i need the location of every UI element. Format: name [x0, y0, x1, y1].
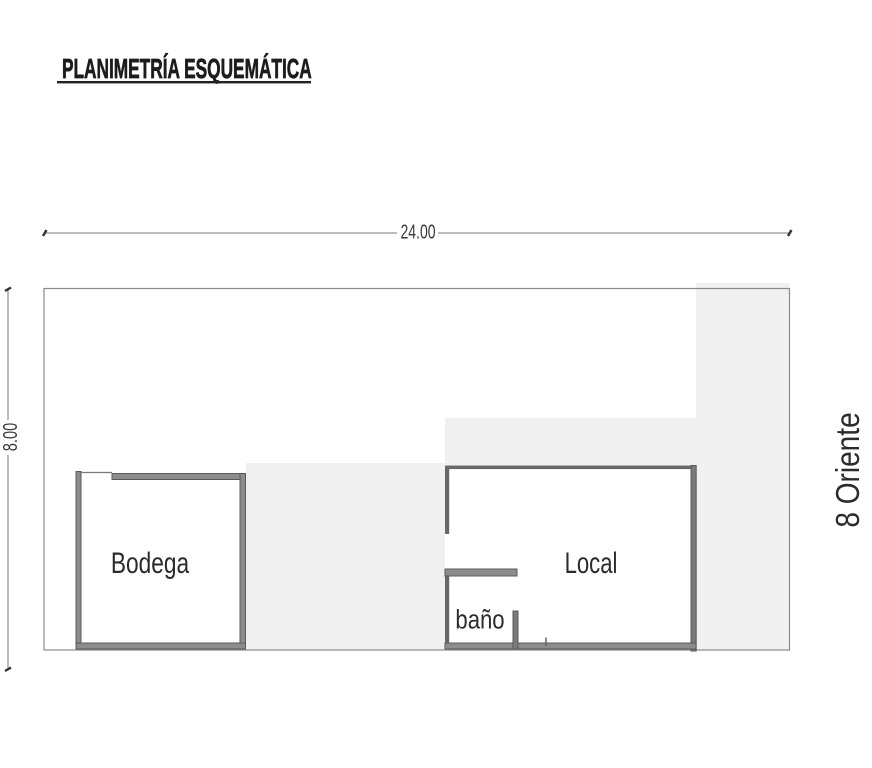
svg-text:Bodega: Bodega — [111, 546, 190, 580]
svg-text:baño: baño — [455, 606, 504, 636]
svg-text:8.00: 8.00 — [0, 423, 22, 452]
svg-text:Local: Local — [565, 546, 618, 580]
svg-text:8 Oriente: 8 Oriente — [830, 412, 867, 527]
svg-text:24.00: 24.00 — [400, 220, 435, 243]
svg-text:PLANIMETRÍA ESQUEMÁTICA: PLANIMETRÍA ESQUEMÁTICA — [62, 52, 312, 84]
